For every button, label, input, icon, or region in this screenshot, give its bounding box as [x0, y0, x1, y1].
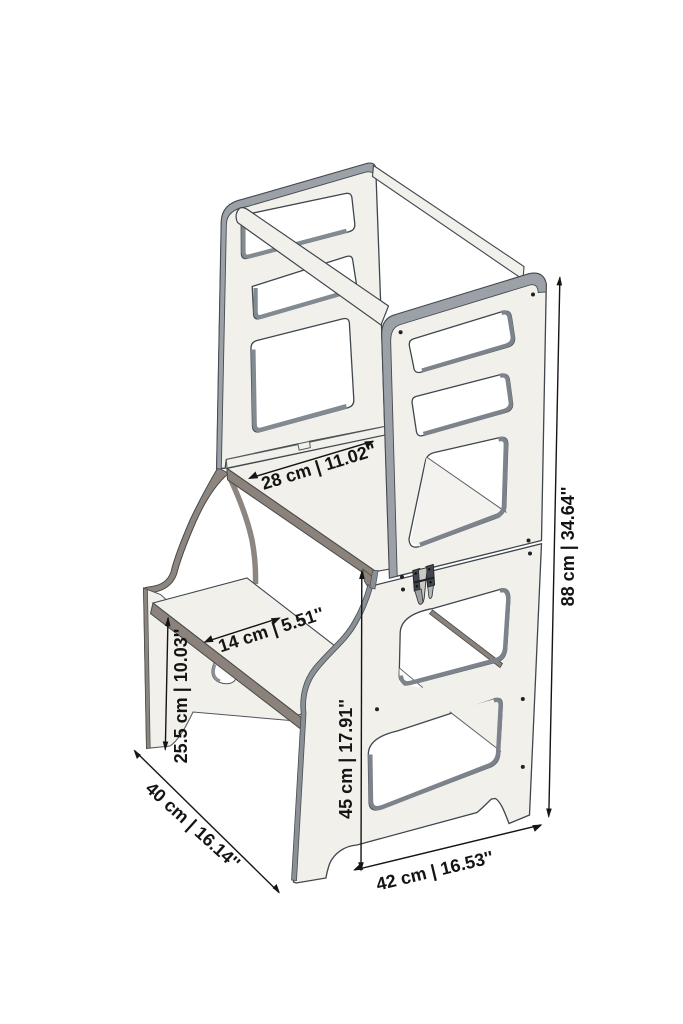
svg-text:88 cm | 34.64'': 88 cm | 34.64'': [558, 487, 578, 607]
svg-text:25.5 cm | 10.03'': 25.5 cm | 10.03'': [171, 629, 191, 764]
svg-text:45 cm | 17.91'': 45 cm | 17.91'': [336, 699, 356, 819]
